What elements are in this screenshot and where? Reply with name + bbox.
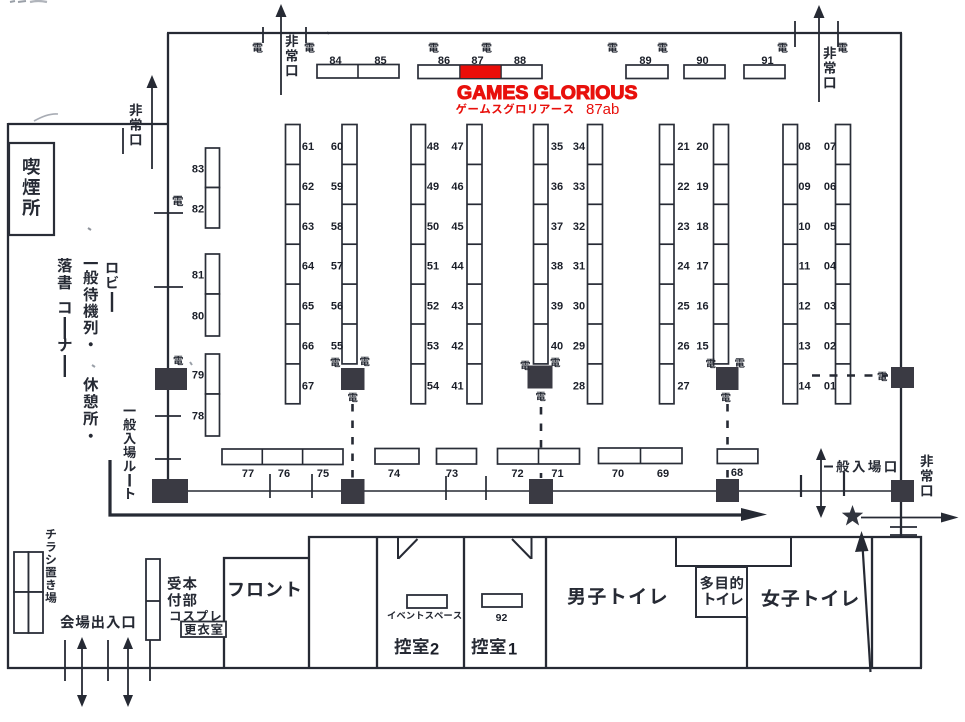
- svg-text:55: 55: [331, 341, 343, 353]
- svg-text:84: 84: [329, 55, 342, 67]
- svg-text:48: 48: [427, 141, 439, 153]
- svg-text:27: 27: [677, 380, 689, 392]
- svg-text:23: 23: [677, 221, 689, 233]
- svg-text:89: 89: [639, 55, 651, 67]
- svg-text:44: 44: [451, 261, 464, 273]
- svg-text:37: 37: [551, 221, 563, 233]
- svg-text:83: 83: [192, 163, 204, 175]
- svg-text:32: 32: [573, 221, 585, 233]
- svg-text:81: 81: [192, 270, 204, 282]
- svg-text:67: 67: [302, 380, 314, 392]
- svg-text:87: 87: [471, 55, 483, 67]
- svg-text:33: 33: [573, 181, 585, 193]
- svg-text:19: 19: [696, 181, 708, 193]
- svg-text:13: 13: [798, 341, 810, 353]
- svg-text:25: 25: [677, 301, 689, 313]
- svg-text:65: 65: [302, 301, 314, 313]
- svg-text:92: 92: [496, 612, 508, 624]
- svg-text:11: 11: [799, 261, 811, 273]
- svg-text:69: 69: [657, 468, 669, 480]
- svg-text:76: 76: [278, 468, 290, 480]
- svg-text:15: 15: [696, 341, 708, 353]
- svg-text:86: 86: [438, 55, 450, 67]
- svg-text:29: 29: [573, 341, 585, 353]
- svg-text:08: 08: [798, 141, 810, 153]
- svg-text:09: 09: [798, 181, 810, 193]
- svg-text:41: 41: [451, 380, 463, 392]
- svg-text:26: 26: [677, 341, 689, 353]
- svg-text:39: 39: [551, 301, 563, 313]
- svg-text:16: 16: [696, 301, 708, 313]
- svg-text:22: 22: [677, 181, 689, 193]
- svg-text:04: 04: [824, 261, 837, 273]
- svg-text:42: 42: [451, 341, 463, 353]
- svg-text:61: 61: [302, 141, 314, 153]
- svg-text:06: 06: [824, 181, 836, 193]
- svg-text:07: 07: [824, 141, 836, 153]
- svg-text:71: 71: [551, 468, 563, 480]
- svg-text:45: 45: [451, 221, 463, 233]
- svg-text:14: 14: [798, 380, 811, 392]
- svg-text:80: 80: [192, 311, 204, 323]
- svg-text:85: 85: [374, 55, 386, 67]
- svg-text:91: 91: [761, 55, 773, 67]
- svg-text:79: 79: [192, 370, 204, 382]
- svg-text:2: 2: [430, 641, 439, 659]
- svg-text:51: 51: [427, 261, 439, 273]
- svg-text:59: 59: [331, 181, 343, 193]
- svg-text:40: 40: [551, 341, 563, 353]
- svg-text:54: 54: [427, 380, 440, 392]
- svg-text:52: 52: [427, 301, 439, 313]
- svg-text:46: 46: [451, 181, 463, 193]
- svg-text:87ab: 87ab: [586, 101, 619, 118]
- svg-text:63: 63: [302, 221, 314, 233]
- svg-text:28: 28: [573, 380, 585, 392]
- svg-text:68: 68: [731, 467, 743, 479]
- svg-text:66: 66: [302, 341, 314, 353]
- svg-text:77: 77: [242, 468, 254, 480]
- svg-text:10: 10: [798, 221, 810, 233]
- svg-text:62: 62: [302, 181, 314, 193]
- svg-text:01: 01: [824, 380, 836, 392]
- svg-text:30: 30: [573, 301, 585, 313]
- svg-text:72: 72: [511, 468, 523, 480]
- svg-text:74: 74: [388, 468, 401, 480]
- svg-text:56: 56: [331, 301, 343, 313]
- svg-text:17: 17: [696, 261, 708, 273]
- svg-text:75: 75: [317, 468, 329, 480]
- svg-text:21: 21: [677, 141, 689, 153]
- svg-text:78: 78: [192, 411, 204, 423]
- svg-text:43: 43: [451, 301, 463, 313]
- svg-text:90: 90: [696, 55, 708, 67]
- svg-text:82: 82: [192, 203, 204, 215]
- svg-text:24: 24: [677, 261, 690, 273]
- svg-text:47: 47: [451, 141, 463, 153]
- svg-text:88: 88: [514, 55, 526, 67]
- svg-text:49: 49: [427, 181, 439, 193]
- svg-text:18: 18: [696, 221, 708, 233]
- svg-text:60: 60: [331, 141, 343, 153]
- svg-text:64: 64: [302, 261, 315, 273]
- svg-text:50: 50: [427, 221, 439, 233]
- svg-text:58: 58: [331, 221, 343, 233]
- svg-text:12: 12: [798, 301, 810, 313]
- svg-text:73: 73: [446, 468, 458, 480]
- svg-text:31: 31: [573, 261, 585, 273]
- svg-text:05: 05: [824, 221, 836, 233]
- svg-text:53: 53: [427, 341, 439, 353]
- svg-text:34: 34: [573, 141, 586, 153]
- svg-text:70: 70: [612, 468, 624, 480]
- svg-text:20: 20: [696, 141, 708, 153]
- svg-text:57: 57: [331, 261, 343, 273]
- svg-text:36: 36: [551, 181, 563, 193]
- svg-text:35: 35: [551, 141, 563, 153]
- svg-text:02: 02: [824, 341, 836, 353]
- svg-text:1: 1: [508, 641, 517, 659]
- svg-text:38: 38: [551, 261, 563, 273]
- svg-text:03: 03: [824, 301, 836, 313]
